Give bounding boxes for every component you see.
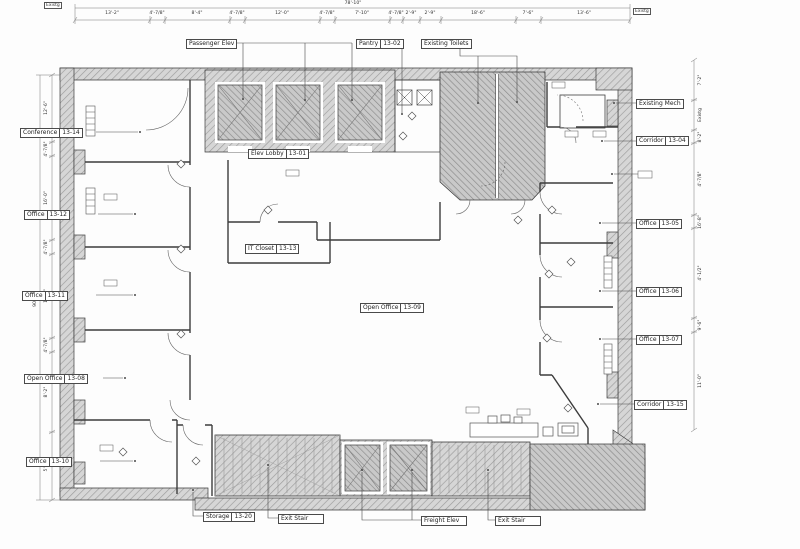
room-number: 13-09	[401, 303, 423, 313]
room-label-passenger-elev: Passenger Elev	[186, 39, 237, 49]
dim-top-seg: 4'-7/8"	[149, 11, 164, 16]
dim-left-seg: 8'-2"	[44, 387, 49, 398]
dim-top-seg: 7'-6"	[523, 11, 534, 16]
room-number: 13-02	[381, 39, 403, 49]
room-label-corridor-13-15: Corridor 13-15	[634, 400, 687, 410]
dim-right-seg: 16'-8"	[698, 215, 703, 229]
room-label-open-office-13-08: Open Office 13-08	[24, 374, 88, 384]
dim-top-overall: 78'-10"	[345, 1, 362, 6]
dim-left-seg: 16'-0"	[44, 191, 49, 205]
room-label-storage: Storage 13-20	[203, 512, 255, 522]
room-name: Office	[24, 210, 48, 220]
room-name: Office	[22, 291, 46, 301]
dim-right-seg: 4'-1/2"	[698, 265, 703, 280]
room-number: 13-14	[60, 128, 82, 138]
room-label-existing-mech: Existing Mech	[636, 99, 684, 109]
dim-note-existg-top-right: Existg	[633, 8, 651, 15]
dim-left-seg: 4'-7/8"	[44, 337, 49, 352]
room-number: 13-06	[660, 287, 682, 297]
kitchen-counters	[470, 415, 578, 437]
bottom-right-core	[530, 444, 645, 510]
dim-right-seg: 9'-6"	[698, 320, 703, 331]
room-label-existing-toilets: Existing Toilets	[421, 39, 472, 49]
room-label-office-13-12: Office 13-12	[24, 210, 70, 220]
room-label-corridor-13-04: Corridor 13-04	[636, 136, 689, 146]
dim-left-seg: 12'-6"	[44, 101, 49, 115]
floorplan-drawing	[0, 0, 800, 549]
room-label-conference: Conference 13-14	[20, 128, 83, 138]
room-name: Corridor	[636, 136, 666, 146]
existing-toilets-rooms	[440, 72, 545, 200]
dim-top-seg: 13'-6"	[577, 11, 591, 16]
dim-top-seg: 4'-7/8"	[319, 11, 334, 16]
room-label-office-13-11: Office 13-11	[22, 291, 68, 301]
floor-plan-sheet: Passenger Elev Pantry 13-02 Existing Toi…	[0, 0, 800, 549]
room-label-open-office-13-09: Open Office 13-09	[360, 303, 424, 313]
room-name: Freight Elev	[421, 516, 467, 526]
room-name: Exit Stair	[495, 516, 541, 526]
room-name: Storage	[203, 512, 232, 522]
dim-right-seg: 8'-2"	[698, 132, 703, 143]
room-label-office-13-06: Office 13-06	[636, 287, 682, 297]
room-name: Open Office	[24, 374, 65, 384]
room-label-office-13-07: Office 13-07	[636, 335, 682, 345]
dim-right-seg: 7'-2"	[698, 75, 703, 86]
room-number: 13-07	[660, 335, 682, 345]
dim-left-seg: 4'-7/8"	[44, 239, 49, 254]
dim-top-seg: 12'-0"	[275, 11, 289, 16]
room-number: 13-05	[660, 219, 682, 229]
room-name: Office	[26, 457, 50, 467]
room-name: Passenger Elev	[186, 39, 237, 49]
room-name: Office	[636, 335, 660, 345]
dim-right-seg: Existg	[698, 108, 703, 122]
room-name: Open Office	[360, 303, 401, 313]
room-label-office-13-10: Office 13-10	[26, 457, 72, 467]
room-label-it-closet: IT Closet 13-13	[245, 244, 299, 254]
room-label-exit-stair-1: Exit Stair	[278, 514, 324, 524]
room-number: 13-20	[232, 512, 254, 522]
room-name: Exit Stair	[278, 514, 324, 524]
room-number: 13-15	[664, 400, 686, 410]
dim-top-seg: 8'-4"	[192, 11, 203, 16]
dim-top-seg: 4'-7/8"	[388, 11, 403, 16]
dim-top-seg: 2'-9"	[425, 11, 436, 16]
dim-top-seg: 7'-10"	[355, 11, 369, 16]
room-name: Office	[636, 287, 660, 297]
room-label-pantry: Pantry 13-02	[356, 39, 404, 49]
room-number: 13-12	[48, 210, 70, 220]
dim-right-seg: 11'-0"	[698, 374, 703, 388]
dim-left-seg: 4'-7/8"	[44, 141, 49, 156]
room-name: Existing Mech	[636, 99, 684, 109]
room-label-exit-stair-2: Exit Stair	[495, 516, 541, 526]
room-number: 13-01	[287, 149, 309, 159]
room-name: Existing Toilets	[421, 39, 472, 49]
room-label-freight-elev: Freight Elev	[421, 516, 467, 526]
passenger-elevator-bank	[205, 70, 395, 152]
dim-top-seg: 13'-2"	[105, 11, 119, 16]
room-name: Elev Lobby	[248, 149, 287, 159]
dim-note-existg-top-left: Existg	[44, 2, 62, 9]
room-name: Office	[636, 219, 660, 229]
room-number: 13-04	[666, 136, 688, 146]
room-name: Conference	[20, 128, 60, 138]
room-number: 13-08	[65, 374, 87, 384]
room-number: 13-10	[50, 457, 72, 467]
dim-top-seg: 4'-7/8"	[229, 11, 244, 16]
room-number: 13-11	[46, 291, 68, 301]
room-label-elev-lobby: Elev Lobby 13-01	[248, 149, 309, 159]
dim-right-seg: 4'-7/8"	[698, 171, 703, 186]
room-name: Pantry	[356, 39, 381, 49]
room-name: Corridor	[634, 400, 664, 410]
dim-top-seg: 18'-6"	[471, 11, 485, 16]
exit-stair-2-room	[432, 442, 530, 496]
room-label-office-13-05: Office 13-05	[636, 219, 682, 229]
dim-top-seg: 2'-9"	[406, 11, 417, 16]
room-number: 13-13	[277, 244, 299, 254]
room-name: IT Closet	[245, 244, 277, 254]
